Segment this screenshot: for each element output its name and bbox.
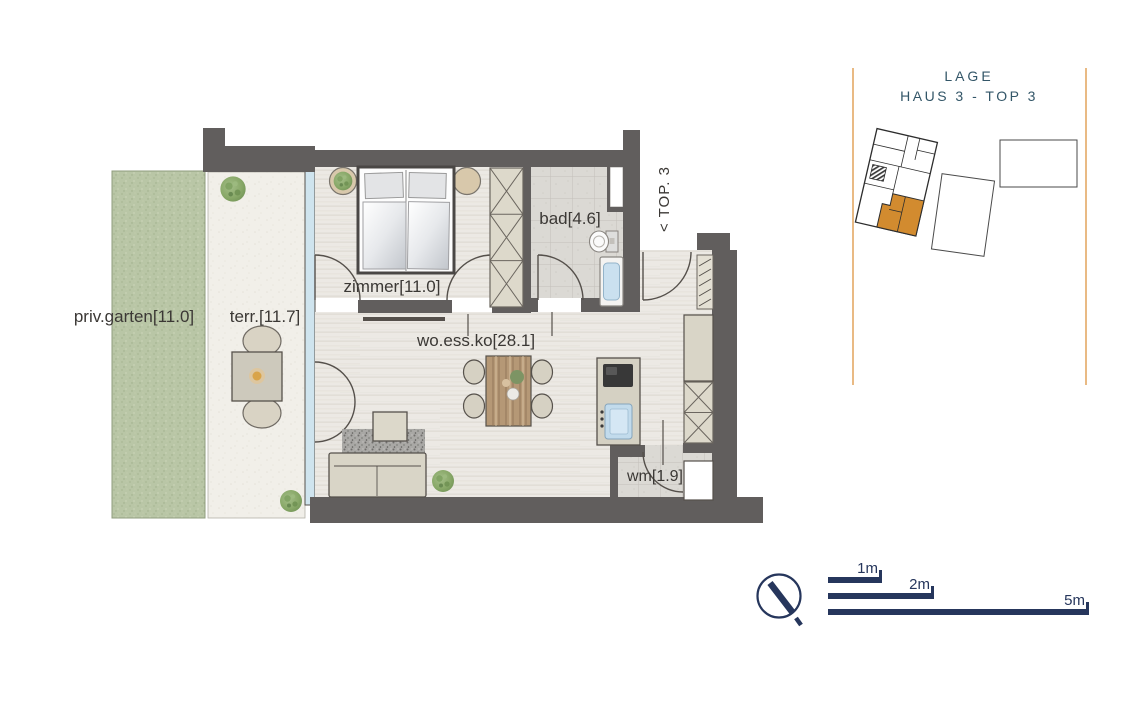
sofa <box>329 453 426 497</box>
scale-label-5m: 5m <box>1064 592 1085 609</box>
coffee-table <box>373 412 407 441</box>
table-bowl <box>502 379 510 387</box>
plant-terrace-bottom <box>280 490 302 512</box>
table-plant <box>510 370 524 384</box>
table-lamp <box>253 372 262 381</box>
shaft-niche <box>610 167 623 207</box>
scale-label-1m: 1m <box>857 560 878 577</box>
scale-label-2m: 2m <box>909 576 930 593</box>
panel-subtitle: HAUS 3 - TOP 3 <box>900 88 1038 104</box>
table-plate <box>507 388 519 400</box>
nightstand-right <box>454 168 481 195</box>
label-bedroom: zimmer[11.0] <box>344 277 441 296</box>
scale-bar-1m <box>828 577 882 583</box>
siteplan-building-outline-mid <box>931 174 994 257</box>
label-terrace: terr.[11.7] <box>230 307 301 326</box>
plant-terrace-top <box>220 176 245 201</box>
wardrobe-bedroom <box>490 168 523 307</box>
label-bathroom: bad[4.6] <box>539 209 600 228</box>
bathtub <box>600 257 623 306</box>
double-bed <box>358 167 454 273</box>
tall-cabinet <box>684 315 713 381</box>
floorplan-page: priv.garten[11.0] terr.[11.7] zimmer[11.… <box>0 0 1136 708</box>
plant-living <box>432 470 454 492</box>
plant-nightstand <box>334 172 353 191</box>
garden-area <box>112 171 205 518</box>
panel-title: LAGE <box>944 68 993 84</box>
siteplan-building <box>855 129 937 236</box>
label-utility: wm[1.9] <box>626 468 683 485</box>
north-compass <box>758 575 802 626</box>
kitchen-unit <box>597 358 640 445</box>
scale-bar-5m <box>828 609 1089 615</box>
wardrobe-hall <box>684 382 713 443</box>
glass-facade <box>305 167 315 505</box>
label-garden: priv.garten[11.0] <box>74 307 194 326</box>
floorplan-drawing: priv.garten[11.0] terr.[11.7] zimmer[11.… <box>0 0 1136 708</box>
siteplan-building-outline-right <box>1000 140 1077 187</box>
coat-rack <box>697 255 713 309</box>
washing-machine <box>684 461 713 500</box>
scale-bar-2m <box>828 593 934 599</box>
entry-top-label: < TOP. 3 <box>656 166 673 232</box>
location-panel: LAGE HAUS 3 - TOP 3 <box>853 68 1086 385</box>
label-living: wo.ess.ko[28.1] <box>416 331 535 350</box>
scale-bar: 1m 2m 5m <box>828 560 1089 615</box>
toilet <box>590 231 619 252</box>
